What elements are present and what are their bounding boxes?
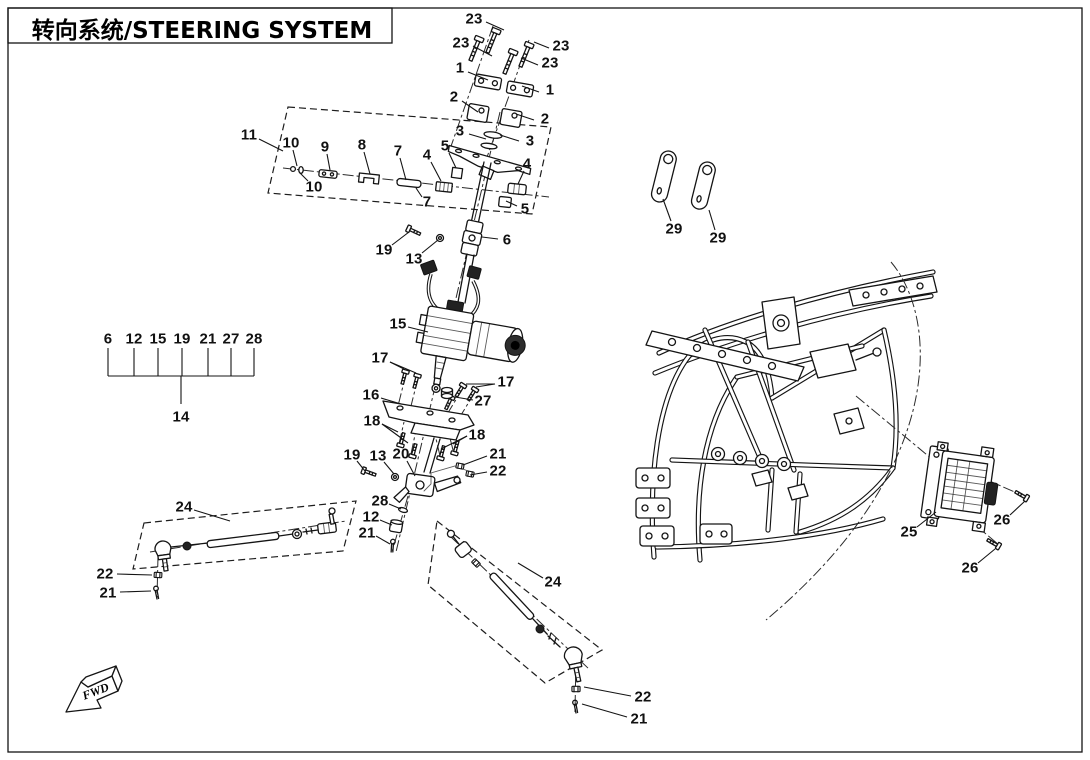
callout-22: 22 <box>489 463 506 480</box>
leader-line <box>376 536 390 544</box>
callout-13: 13 <box>369 448 386 465</box>
washer <box>484 131 503 139</box>
callout-10: 10 <box>282 135 299 152</box>
callout-7: 7 <box>394 143 403 160</box>
leader-line <box>469 134 486 139</box>
wire-connector <box>420 260 437 275</box>
legend-number-12: 12 <box>125 331 142 348</box>
legend-number-6: 6 <box>104 331 113 348</box>
leader-line <box>416 188 422 197</box>
callout-25: 25 <box>900 524 917 541</box>
fwd-arrow: FWD <box>66 666 122 712</box>
leader-line <box>663 199 671 221</box>
wire-connector <box>467 266 481 280</box>
leader-line <box>117 574 152 575</box>
callout-26: 26 <box>961 560 978 577</box>
callout-21: 21 <box>489 446 506 463</box>
callout-27: 27 <box>474 393 491 410</box>
callout-23: 23 <box>541 55 558 72</box>
callout-23: 23 <box>452 35 469 52</box>
legend-group-number: 14 <box>172 409 189 426</box>
leader-line <box>449 153 456 168</box>
callout-28: 28 <box>371 493 388 510</box>
leader-line <box>582 704 627 717</box>
callout-18: 18 <box>468 427 485 444</box>
callout-23: 23 <box>465 11 482 28</box>
leader-line <box>709 210 715 230</box>
pitman-arm <box>393 468 461 511</box>
callout-21: 21 <box>99 585 116 602</box>
callout-1: 1 <box>546 82 555 99</box>
callout-10: 10 <box>305 179 322 196</box>
leader-line <box>431 162 441 181</box>
legend-number-15: 15 <box>149 331 166 348</box>
legend-number-27: 27 <box>222 331 239 348</box>
leader-line <box>482 237 498 239</box>
callout-29: 29 <box>709 230 726 247</box>
callout-3: 3 <box>456 123 465 140</box>
hanger-straps <box>650 149 717 210</box>
leader-line <box>293 150 297 166</box>
leader-line <box>534 42 549 48</box>
callout-1: 1 <box>456 60 465 77</box>
callout-11: 11 <box>241 127 257 144</box>
callout-4: 4 <box>423 147 432 164</box>
callout-24: 24 <box>175 499 192 516</box>
callout-5: 5 <box>441 138 450 155</box>
callout-2: 2 <box>541 111 550 128</box>
clamp-block <box>500 108 522 127</box>
handlebar-mount-plate <box>445 145 532 185</box>
callout-17: 17 <box>371 350 388 367</box>
callout-16: 16 <box>362 387 379 404</box>
callout-22: 22 <box>634 689 651 706</box>
leader-line <box>364 152 370 174</box>
callout-21: 21 <box>358 525 375 542</box>
callout-22: 22 <box>96 566 113 583</box>
callout-4: 4 <box>523 156 532 173</box>
callout-19: 19 <box>375 242 392 259</box>
leader-line <box>194 510 230 521</box>
callout-21: 21 <box>630 711 647 728</box>
callout-24: 24 <box>544 574 561 591</box>
washer <box>481 142 498 149</box>
callout-17: 17 <box>497 374 514 391</box>
callout-5: 5 <box>521 201 530 218</box>
callout-20: 20 <box>392 446 409 463</box>
leader-line <box>518 171 524 184</box>
leader-line <box>422 240 438 253</box>
leader-line <box>400 158 406 180</box>
leader-line <box>500 135 519 141</box>
callout-29: 29 <box>665 221 682 238</box>
callout-8: 8 <box>358 137 367 154</box>
tie-rod-right <box>443 527 587 713</box>
callout-9: 9 <box>321 139 330 156</box>
leader-line <box>120 591 151 592</box>
callout-13: 13 <box>405 251 422 268</box>
legend-number-28: 28 <box>245 331 262 348</box>
universal-joint <box>460 220 485 257</box>
parts-diagram-page: FWD 转向系统/STEERING SYSTEM 232323231122331… <box>0 0 1090 760</box>
legend-bracket <box>108 348 254 404</box>
leader-line <box>327 154 330 170</box>
leader-line <box>389 504 401 509</box>
callout-2: 2 <box>450 89 459 106</box>
callout-15: 15 <box>389 316 406 333</box>
leader-line <box>978 549 995 563</box>
legend-number-19: 19 <box>173 331 190 348</box>
page-title: 转向系统/STEERING SYSTEM <box>24 11 380 45</box>
callout-7: 7 <box>423 194 432 211</box>
leader-line <box>392 232 409 245</box>
leader-line <box>584 687 631 696</box>
leader-line <box>518 563 543 578</box>
callout-26: 26 <box>993 512 1010 529</box>
callout-6: 6 <box>503 232 512 249</box>
leader-line <box>1010 501 1025 515</box>
legend-number-21: 21 <box>199 331 216 348</box>
ecu-unit <box>920 440 1003 534</box>
ball-joint <box>443 527 472 559</box>
callout-12: 12 <box>362 509 379 526</box>
frame-drawing <box>636 272 937 560</box>
callout-3: 3 <box>526 133 535 150</box>
callout-18: 18 <box>363 413 380 430</box>
leader-line <box>463 456 487 465</box>
callout-19: 19 <box>343 447 360 464</box>
callout-23: 23 <box>552 38 569 55</box>
bushing <box>389 519 403 533</box>
